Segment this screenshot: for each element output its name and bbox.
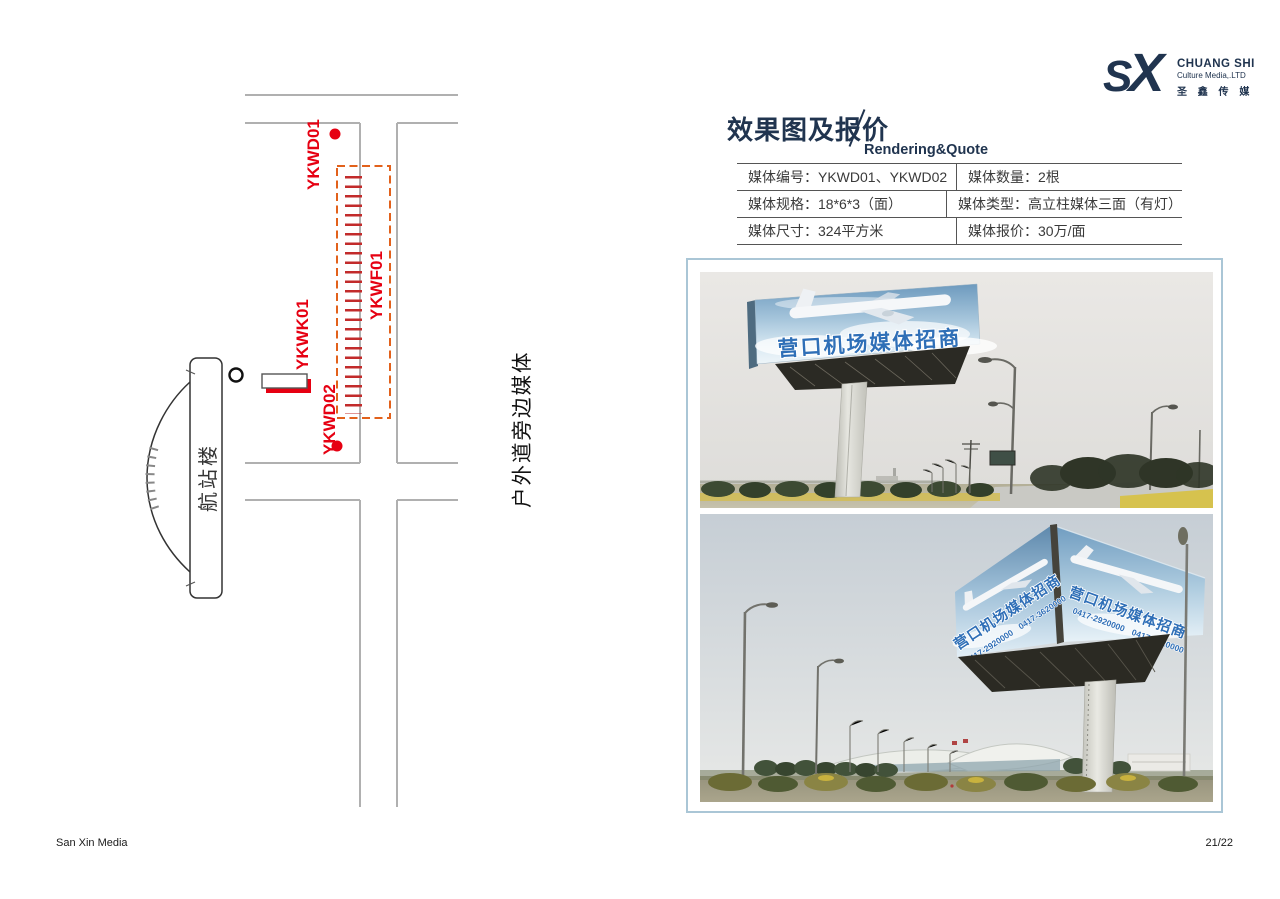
logo-company-en: CHUANG SHI [1177, 58, 1255, 70]
billboard-pole [1082, 680, 1116, 792]
logo-letter-x: X [1128, 43, 1160, 103]
cell-media-type: 媒体类型：高立柱媒体三面（有灯） [947, 191, 1182, 217]
table-row: 媒体编号：YKWD01、YKWD02 媒体数量：2根 [737, 164, 1182, 191]
footer-company-name: San Xin Media [56, 837, 128, 849]
cell-media-spec: 媒体规格：18*6*3（面） [737, 191, 947, 217]
circle-symbol [230, 369, 243, 382]
distant-person [950, 784, 953, 787]
board-marker [262, 374, 311, 393]
label-ykwf01: YKWF01 [367, 251, 386, 320]
cell-label: 媒体数量： [968, 167, 1038, 187]
terminal-building: 航站楼 [147, 358, 222, 598]
page-number: 21/22 [1150, 837, 1233, 849]
logo-company-zh: 圣 鑫 传 媒 [1177, 83, 1255, 98]
label-ykwd02: YKWD02 [320, 384, 339, 455]
logo-text-block: CHUANG SHI Culture Media,.LTD 圣 鑫 传 媒 [1177, 58, 1255, 98]
cell-value: 18*6*3（面） [818, 194, 902, 214]
logo-letter-s: S [1103, 52, 1128, 101]
label-ykwk01: YKWK01 [293, 299, 312, 370]
cell-value: 324平方米 [818, 221, 883, 241]
road-sign [990, 451, 1015, 465]
cell-value: YKWD01、YKWD02 [818, 167, 947, 187]
cell-value: 30万/面 [1038, 221, 1085, 241]
quote-table: 媒体编号：YKWD01、YKWD02 媒体数量：2根 媒体规格：18*6*3（面… [737, 163, 1182, 245]
cell-media-price: 媒体报价：30万/面 [957, 218, 1182, 244]
cell-label: 媒体报价： [968, 221, 1038, 241]
terminal-building-label: 航站楼 [197, 443, 220, 512]
photo-panel: 营口机场媒体招商 0417-29200000417-3620000 [686, 258, 1223, 813]
billboard-photo-front: 营口机场媒体招商 0417-29200000417-3620000 [700, 272, 1213, 508]
cell-label: 媒体类型： [958, 194, 1028, 214]
cell-media-count: 媒体数量：2根 [957, 164, 1182, 190]
location-map: 航站楼 YKWD01 YKWF01 YKWK01 YKWD02 户外道旁边媒体 [120, 80, 580, 830]
cell-label: 媒体编号： [748, 167, 818, 187]
media-point-dot-ykwd01 [330, 129, 341, 140]
page-subtitle: Rendering&Quote [864, 142, 988, 158]
logo-company-sub: Culture Media,.LTD [1177, 71, 1255, 80]
map-roads [245, 95, 458, 807]
roadside-media-caption: 户外道旁边媒体 [511, 351, 534, 509]
company-logo: SX CHUANG SHI Culture Media,.LTD 圣 鑫 传 媒 [1103, 46, 1253, 104]
cell-media-code: 媒体编号：YKWD01、YKWD02 [737, 164, 957, 190]
label-ykwd01: YKWD01 [304, 119, 323, 190]
cell-label: 媒体规格： [748, 194, 818, 214]
billboard-photo-corner: 营口机场媒体招商 0417-29200000417-3620000 营口机场媒体… [700, 514, 1213, 802]
cell-value: 2根 [1038, 167, 1060, 187]
brochure-page: SX CHUANG SHI Culture Media,.LTD 圣 鑫 传 媒… [0, 0, 1280, 899]
table-row: 媒体规格：18*6*3（面） 媒体类型：高立柱媒体三面（有灯） [737, 191, 1182, 218]
cell-label: 媒体尺寸： [748, 221, 818, 241]
table-row: 媒体尺寸：324平方米 媒体报价：30万/面 [737, 218, 1182, 245]
cell-media-size: 媒体尺寸：324平方米 [737, 218, 957, 244]
cell-value: 高立柱媒体三面（有灯） [1028, 194, 1182, 214]
map-media-labels: YKWD01 YKWF01 YKWK01 YKWD02 [293, 119, 386, 455]
